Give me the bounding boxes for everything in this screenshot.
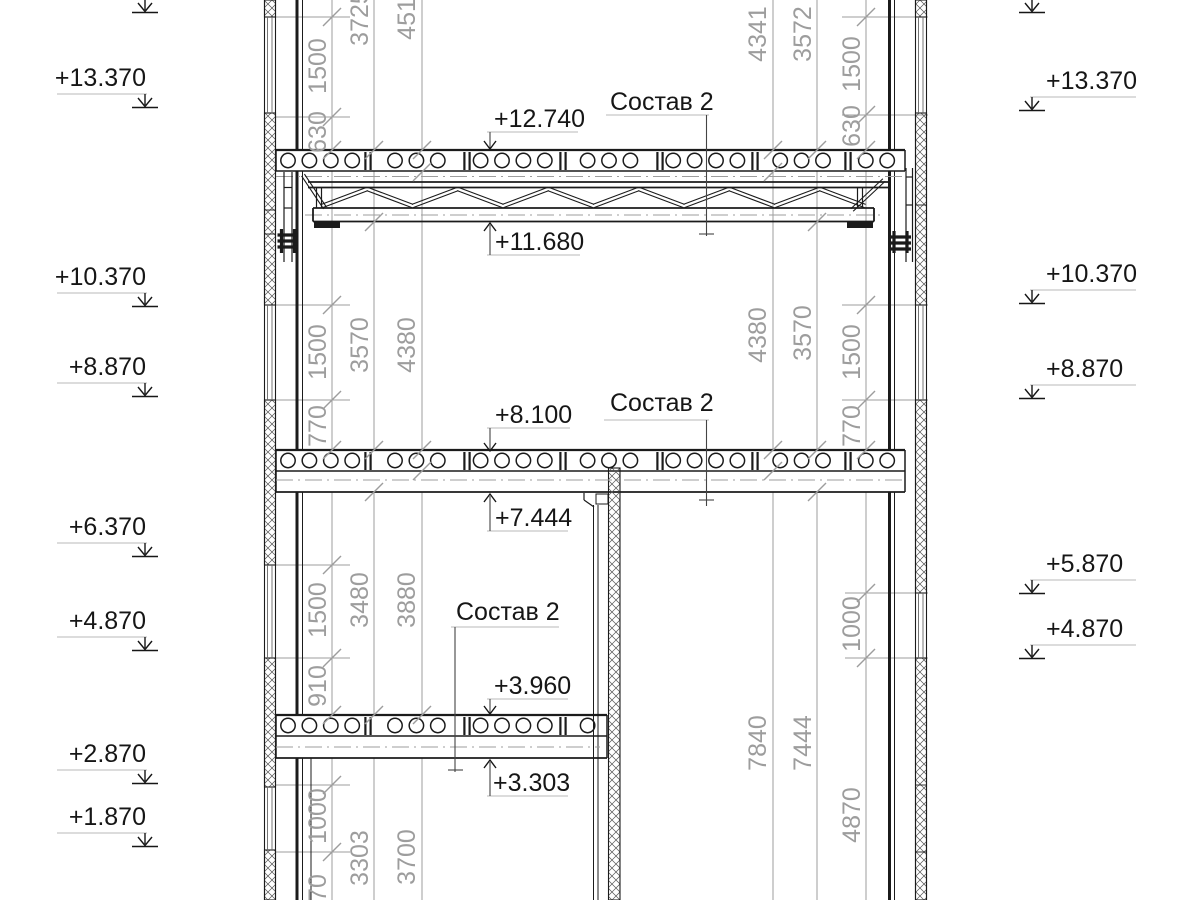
- dim-label: 1500: [304, 38, 332, 94]
- facade-wall: [916, 0, 927, 900]
- slab-void-circle: [666, 453, 680, 467]
- dim-label: 3480: [346, 572, 374, 628]
- dim-label: 770: [304, 405, 332, 447]
- elevation-marker: [132, 0, 158, 13]
- elevation-text: +13.370: [1046, 67, 1137, 95]
- elevation-marker: +4.870: [57, 607, 158, 651]
- interior-wall: [584, 468, 620, 900]
- bolted-connection-details: [278, 229, 912, 253]
- slab-void-circle: [773, 453, 787, 467]
- dim-label: 4341: [744, 6, 772, 62]
- slab-void-circle: [602, 153, 616, 167]
- level-label-3960: +3.960: [484, 672, 571, 714]
- truss-diagonal: [302, 176, 324, 209]
- slab-void-circle: [730, 453, 744, 467]
- slab-void-circle: [388, 153, 402, 167]
- truss-diagonal: [502, 187, 547, 204]
- level-label-11680: +11.680: [484, 223, 584, 256]
- building-section-drawing: +12.740 +11.680 +8.100 +7.444 +3.960: [0, 0, 1200, 900]
- elevation-text: +2.870: [69, 740, 146, 768]
- elevation-text: +4.870: [1046, 615, 1123, 643]
- dim-label: 4870: [838, 787, 866, 843]
- dim-label: 1500: [838, 324, 866, 380]
- facade-wall: [265, 0, 276, 900]
- slab-void-circle: [794, 153, 808, 167]
- truss-diagonal: [458, 187, 503, 204]
- dim-label: 630: [304, 111, 332, 153]
- steel-truss: [302, 174, 888, 228]
- dim-label: 3572: [789, 6, 817, 62]
- level-text: +7.444: [495, 504, 572, 532]
- truss-diagonal: [413, 191, 458, 208]
- level-label-3303: +3.303: [484, 760, 570, 797]
- slab-void-circle: [431, 453, 445, 467]
- slab-void-circle: [880, 453, 894, 467]
- slab-void-circle: [602, 453, 616, 467]
- dim-label: 1500: [304, 582, 332, 638]
- dim-label: 7840: [744, 715, 772, 771]
- elevation-text: +10.370: [1046, 260, 1137, 288]
- slab-void-circle: [623, 153, 637, 167]
- truss-bearing-seat: [847, 222, 873, 228]
- level-label-8100: +8.100: [484, 401, 572, 451]
- slab-void-circle: [495, 153, 509, 167]
- bolted-connection-right: [890, 231, 911, 253]
- dim-label: 3880: [393, 572, 421, 628]
- elevation-marker: +10.370: [1019, 260, 1137, 304]
- level-label-12740: +12.740: [484, 105, 585, 149]
- dim-label: 1000: [304, 788, 332, 844]
- interior-wall-hatch: [609, 468, 621, 900]
- level-text: +3.303: [493, 769, 570, 797]
- slab-void-circle: [730, 153, 744, 167]
- truss-diagonal: [368, 187, 413, 204]
- slab-void-circle: [431, 153, 445, 167]
- truss-diagonal: [639, 187, 684, 204]
- elevation-text: +5.870: [1046, 550, 1123, 578]
- level-text: +12.740: [494, 105, 585, 133]
- truss-diagonal: [504, 191, 549, 208]
- dim-label: 1000: [838, 596, 866, 652]
- truss-diagonal: [304, 174, 326, 207]
- elevation-marker: +8.870: [57, 353, 158, 397]
- elevation-marker: +6.370: [57, 513, 158, 557]
- slab-void-circle: [709, 453, 723, 467]
- slab-void-circle: [580, 718, 594, 732]
- composition-text: Состав 2: [456, 598, 560, 626]
- slab-void-circle: [302, 453, 316, 467]
- slab-void-circle: [623, 453, 637, 467]
- composition-text: Состав 2: [610, 389, 714, 417]
- wall-corbel-detail: [596, 494, 608, 504]
- truss-diagonal: [775, 191, 820, 208]
- wall-hatch-panel: [916, 658, 927, 900]
- truss-diagonal: [774, 187, 819, 204]
- truss-diagonal: [594, 191, 639, 208]
- slab-void-circle: [473, 718, 487, 732]
- elevation-marker: +13.370: [1019, 67, 1137, 111]
- wall-hatch-panel: [265, 658, 276, 787]
- elevation-text: +6.370: [69, 513, 146, 541]
- truss-diagonal: [548, 191, 593, 208]
- composition-text: Состав 2: [610, 88, 714, 116]
- elevation-text: +4.870: [69, 607, 146, 635]
- dim-label: 970: [304, 874, 332, 900]
- dim-label: 3303: [346, 830, 374, 886]
- slab-void-circle: [281, 453, 295, 467]
- dim-label: 3725: [346, 0, 374, 46]
- slab-void-circle: [687, 153, 701, 167]
- elevation-marker: [1019, 0, 1045, 13]
- truss-diagonal: [730, 187, 775, 204]
- dim-label: 770: [838, 405, 866, 447]
- slab-void-circle: [281, 153, 295, 167]
- level-text: +8.100: [495, 401, 572, 429]
- truss-diagonal: [457, 191, 502, 208]
- truss-diagonal: [685, 191, 730, 208]
- truss-diagonal: [638, 191, 683, 208]
- bolted-connection-left: [278, 229, 299, 253]
- elevation-text: +1.870: [69, 803, 146, 831]
- dim-label: 3570: [346, 317, 374, 373]
- slab-void-circle: [473, 453, 487, 467]
- elevation-text: +13.370: [55, 64, 146, 92]
- slab-void-circle: [345, 453, 359, 467]
- elevation-marker: +10.370: [55, 263, 158, 307]
- wall-hatch-panel: [916, 0, 927, 17]
- truss-diagonal: [729, 191, 774, 208]
- slab-void-circle: [516, 453, 530, 467]
- truss-diagonal: [851, 179, 883, 209]
- slab-void-circle: [538, 718, 552, 732]
- level-label-7444: +7.444: [484, 494, 572, 532]
- wall-hatch-panel: [916, 113, 927, 305]
- dim-label: 630: [838, 105, 866, 147]
- elevation-text: +8.870: [1046, 355, 1123, 383]
- slab-void-circle: [388, 453, 402, 467]
- wall-hatch-panel: [916, 400, 927, 593]
- wall-hatch-panel: [265, 113, 276, 305]
- slab-void-circle: [302, 153, 316, 167]
- elevation-marker: +1.870: [57, 803, 158, 847]
- slab-void-circle: [666, 153, 680, 167]
- slab-void-circle: [345, 718, 359, 732]
- wall-hatch-panel: [265, 400, 276, 565]
- slab-void-circle: [580, 153, 594, 167]
- slab-void-circle: [516, 153, 530, 167]
- dim-label: 7444: [789, 715, 817, 771]
- dim-label: 910: [304, 665, 332, 707]
- truss-bearing-seat: [314, 222, 340, 228]
- dim-label: 3570: [789, 305, 817, 361]
- wall-hatch-panel: [265, 0, 276, 17]
- slab-void-circle: [281, 718, 295, 732]
- elevation-text: +10.370: [55, 263, 146, 291]
- dim-label: 1500: [304, 324, 332, 380]
- slab-void-circle: [516, 718, 530, 732]
- truss-diagonal: [321, 187, 366, 204]
- dim-label: 1500: [838, 36, 866, 92]
- slab-void-circle: [538, 453, 552, 467]
- wall-hatch-panel: [265, 850, 276, 900]
- truss-diagonal: [323, 191, 368, 208]
- dim-label: 3700: [393, 829, 421, 885]
- slab-void-circle: [431, 718, 445, 732]
- composition-labels: Состав 2 Состав 2 Состав 2: [448, 88, 714, 772]
- elevation-marker: +8.870: [1019, 355, 1136, 399]
- elevation-marker: +13.370: [55, 64, 158, 108]
- slab-void-circle: [473, 153, 487, 167]
- slab-void-circle: [388, 718, 402, 732]
- slab-void-circle: [495, 718, 509, 732]
- slab-void-circle: [816, 153, 830, 167]
- truss-diagonal: [593, 187, 638, 204]
- truss-diagonal: [367, 191, 412, 208]
- truss-diagonal: [412, 187, 457, 204]
- slab-void-circle: [709, 153, 723, 167]
- level-text: +11.680: [495, 228, 584, 256]
- slab-void-circle: [816, 453, 830, 467]
- slab-void-circle: [687, 453, 701, 467]
- section-drawing-canvas: +12.740 +11.680 +8.100 +7.444 +3.960: [0, 0, 1200, 900]
- slab-void-circle: [794, 453, 808, 467]
- elevation-marker: +2.870: [57, 740, 158, 784]
- dim-label: 4380: [744, 307, 772, 363]
- truss-diagonal: [549, 187, 594, 204]
- level-text: +3.960: [494, 672, 571, 700]
- slab-void-circle: [880, 153, 894, 167]
- slab-void-circle: [495, 453, 509, 467]
- slab-void-circle: [538, 153, 552, 167]
- elevation-marker: +4.870: [1019, 615, 1136, 659]
- dim-label: 4516: [393, 0, 421, 40]
- elevation-marker: +5.870: [1019, 550, 1136, 594]
- slab-void-circle: [345, 153, 359, 167]
- dim-label: 4380: [393, 317, 421, 373]
- slab-void-circle: [580, 453, 594, 467]
- elevation-text: +8.870: [69, 353, 146, 381]
- slab-void-circle: [302, 718, 316, 732]
